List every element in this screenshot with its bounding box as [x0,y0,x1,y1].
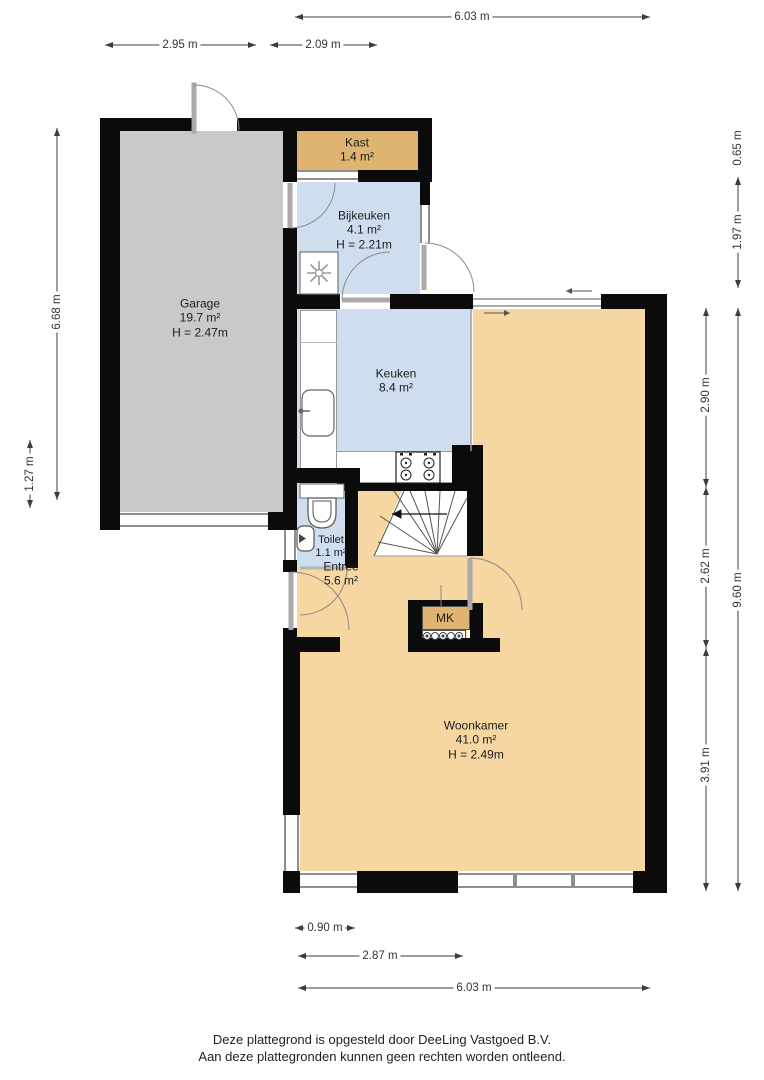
dim-top-total: 6.03 m [451,11,492,23]
dim-left-offset: 1.27 m [24,453,36,494]
dim-bottom-total: 6.03 m [453,982,494,994]
dim-right-kast: 0.65 m [732,127,744,168]
dim-right-entree: 2.62 m [700,545,712,586]
dim-left-garage: 6.68 m [51,291,63,332]
floorplan-canvas: 6.03 m 2.95 m 2.09 m 6.68 m 1.27 m 0.65 … [0,0,764,1080]
dim-top-garage: 2.95 m [159,39,200,51]
dimension-lines [0,0,764,1080]
dim-right-bijkeuken: 1.97 m [732,211,744,252]
dim-bottom-left: 2.87 m [359,950,400,962]
dim-right-keuken: 2.90 m [700,374,712,415]
dim-top-bijkeuken: 2.09 m [302,39,343,51]
dim-right-total: 9.60 m [732,569,744,610]
dim-bottom-door: 0.90 m [304,922,345,934]
dim-right-woonkamer: 3.91 m [700,744,712,785]
